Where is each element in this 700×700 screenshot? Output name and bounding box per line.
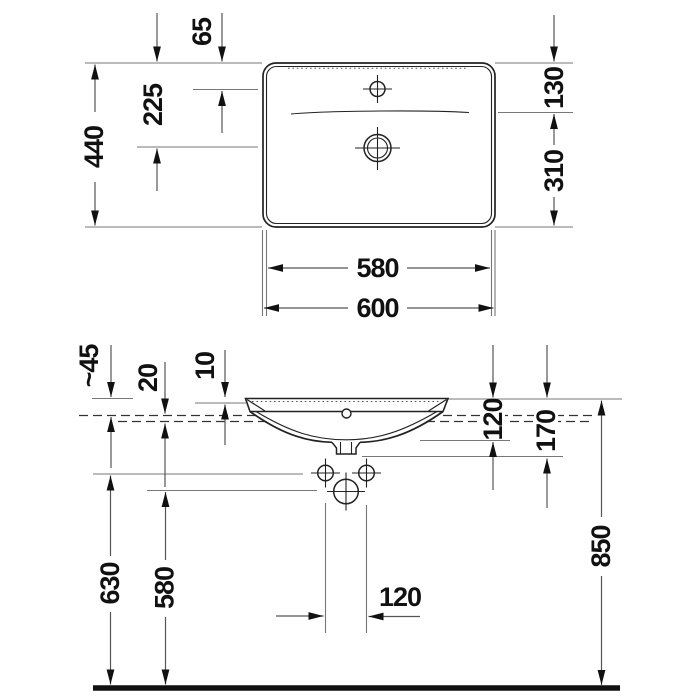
- dim-faucet-offset-65: 65: [187, 13, 222, 133]
- fixing-hole-right: [352, 459, 381, 488]
- dim-drain-hole-height-580: 580: [150, 492, 180, 685]
- dim-label-drain-offset: 225: [138, 83, 168, 126]
- dim-bowl-depth-120: 120: [478, 345, 508, 490]
- dim-counter-thickness-20: 20: [133, 362, 165, 487]
- dim-fixing-holes-spacing-120: 120: [276, 582, 421, 617]
- dim-outer-width-600: 600: [264, 293, 494, 323]
- dim-rim-above-counter-45: ~45: [74, 344, 111, 468]
- technical-drawing-page: 440 225 65 130 310 580: [0, 0, 700, 700]
- dim-back-section-130: 130: [539, 15, 569, 109]
- dim-label-outlet-depth: 170: [531, 410, 561, 452]
- faucet-hole: [363, 75, 392, 103]
- dim-label-counter-thickness: 20: [133, 364, 163, 392]
- dim-label-faucet-offset: 65: [187, 17, 217, 46]
- dim-label-rim-height: 850: [586, 525, 616, 567]
- dim-front-section-310: 310: [539, 114, 569, 226]
- drain-outlet: [332, 442, 360, 454]
- basin-front-profile: [246, 399, 449, 455]
- dim-label-back-section: 130: [539, 67, 569, 109]
- washbasin-drawing: 440 225 65 130 310 580: [0, 0, 700, 700]
- dim-label-drain-hole-height: 580: [150, 567, 180, 609]
- dim-label-fixing-holes-spacing: 120: [379, 582, 421, 612]
- dim-drain-offset-225: 225: [138, 13, 168, 191]
- dim-depth-440: 440: [79, 65, 109, 226]
- dim-label-rim-lip: 10: [190, 352, 220, 380]
- drain-hole: [355, 127, 400, 170]
- deck-edge-line: [291, 111, 469, 114]
- dim-label-bowl-depth: 120: [478, 398, 508, 440]
- dim-fixing-holes-height-630: 630: [95, 476, 125, 685]
- fixing-hole-left: [311, 459, 340, 488]
- dim-label-depth: 440: [79, 126, 109, 168]
- overflow-hole: [342, 409, 351, 418]
- wall-drain-hole: [327, 473, 365, 511]
- dim-rim-lip-10: 10: [190, 350, 225, 445]
- dim-rim-width-580: 580: [268, 253, 490, 283]
- dim-outlet-depth-170: 170: [531, 345, 561, 508]
- dim-rim-height-850: 850: [586, 401, 616, 686]
- dim-label-front-section: 310: [539, 150, 569, 192]
- front-view: ~45 10 20 120 170: [74, 344, 622, 688]
- dim-label-outer-width: 600: [356, 293, 398, 323]
- dim-label-rim-width: 580: [356, 253, 398, 283]
- basin-top-outline: [263, 63, 495, 227]
- dim-label-fixing-holes-height: 630: [95, 562, 125, 604]
- top-view: 440 225 65 130 310 580: [79, 13, 573, 323]
- dim-label-rim-above-counter: ~45: [74, 344, 104, 388]
